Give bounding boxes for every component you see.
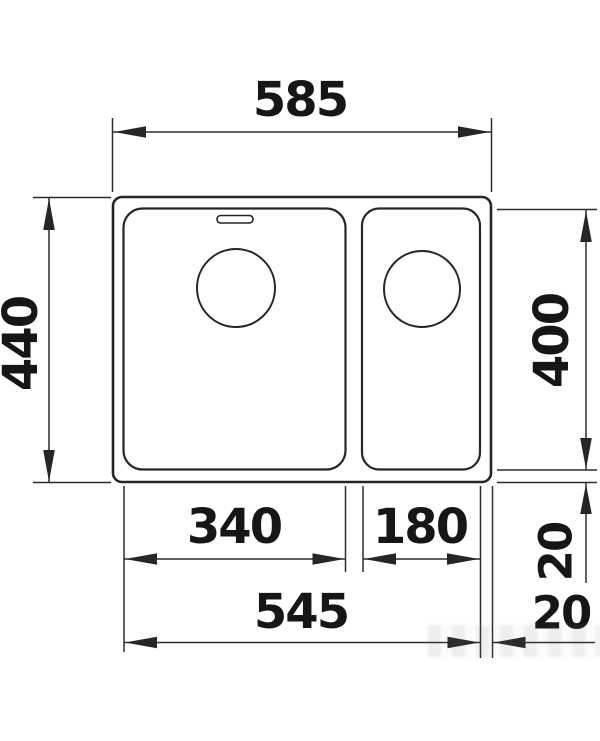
overflow-slot	[217, 216, 253, 224]
main-bowl-drain-circle	[197, 249, 275, 327]
arrow-440-bottom	[43, 450, 55, 482]
arrow-585-right	[458, 126, 490, 138]
dim-label-bottom-edge-gap: 20	[534, 523, 579, 582]
arrow-20-bottom-gap	[580, 484, 592, 514]
sink-outline	[113, 197, 491, 482]
arrow-400-bottom	[580, 438, 592, 469]
arrow-340-right	[313, 553, 345, 565]
dim-label-overall-width: 585	[253, 76, 347, 124]
arrow-20-right-gap	[494, 637, 526, 649]
arrow-545-left	[125, 637, 157, 649]
dim-label-overall-depth: 440	[0, 297, 45, 391]
dim-585-lines	[113, 118, 492, 192]
half-bowl-drain-circle	[384, 251, 460, 327]
main-bowl-outline	[124, 209, 346, 470]
arrow-545-right	[448, 637, 480, 649]
dim-label-bowls-outer-width: 545	[254, 588, 348, 636]
dim-label-right-edge-gap: 20	[532, 591, 591, 636]
dim-label-half-bowl-width: 180	[373, 503, 467, 551]
arrow-400-top	[580, 211, 592, 242]
dim-label-main-bowl-width: 340	[187, 503, 281, 551]
sink-technical-drawing: 585 440 400 20 340 180 545 20	[0, 0, 600, 741]
arrow-340-left	[125, 553, 157, 565]
arrow-585-left	[114, 126, 146, 138]
arrow-440-top	[43, 199, 55, 231]
half-bowl-outline	[362, 209, 480, 470]
dim-label-bowl-inner-depth: 400	[528, 294, 576, 388]
